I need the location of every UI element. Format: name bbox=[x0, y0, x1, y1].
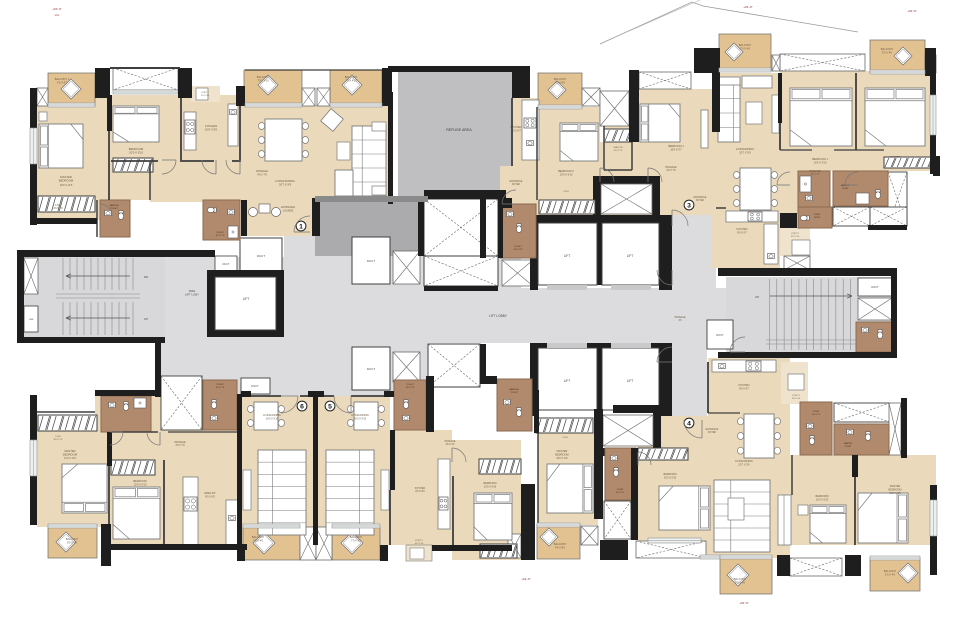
svg-text:7'0 X 4'10: 7'0 X 4'10 bbox=[257, 78, 269, 82]
svg-text:+91'-0": +91'-0" bbox=[52, 7, 61, 11]
svg-text:BEDROOM 2: BEDROOM 2 bbox=[558, 169, 574, 173]
svg-text:4'6 X 7'6: 4'6 X 7'6 bbox=[616, 492, 625, 494]
svg-text:TOILET: TOILET bbox=[406, 384, 414, 386]
svg-text:LIVING/DINING: LIVING/DINING bbox=[736, 147, 754, 151]
svg-text:20'7 X 9'9: 20'7 X 9'9 bbox=[279, 183, 292, 187]
svg-text:DUCT: DUCT bbox=[257, 254, 265, 258]
svg-text:BEDROOM: BEDROOM bbox=[889, 488, 902, 491]
svg-text:8'0 X 1'6: 8'0 X 1'6 bbox=[54, 439, 63, 441]
svg-text:MASTER: MASTER bbox=[509, 388, 519, 391]
svg-text:5: 5 bbox=[328, 403, 332, 410]
svg-text:LIFT LOBY: LIFT LOBY bbox=[185, 293, 199, 297]
svg-text:TOILET: TOILET bbox=[216, 384, 224, 386]
svg-text:4'6 X 3'0: 4'6 X 3'0 bbox=[792, 398, 801, 400]
svg-text:5'0 X 4'6: 5'0 X 4'6 bbox=[882, 50, 892, 54]
svg-text:4'6 X 7'6: 4'6 X 7'6 bbox=[514, 249, 523, 251]
svg-text:BALCONY: BALCONY bbox=[554, 542, 567, 546]
svg-text:ENTRANCE: ENTRANCE bbox=[510, 180, 523, 183]
svg-text:BEDROOM: BEDROOM bbox=[133, 479, 146, 483]
svg-text:BALCONY: BALCONY bbox=[345, 75, 358, 79]
svg-text:MASTER: MASTER bbox=[557, 449, 568, 453]
svg-text:UP: UP bbox=[144, 317, 148, 321]
svg-text:4'6 X 7'0: 4'6 X 7'0 bbox=[257, 173, 267, 176]
svg-text:UTILITY: UTILITY bbox=[415, 540, 424, 542]
svg-text:7'0 X 4'6: 7'0 X 4'6 bbox=[351, 538, 361, 542]
svg-text:10'0 X 11'5: 10'0 X 11'5 bbox=[60, 183, 73, 187]
svg-text:ENTRANCE: ENTRANCE bbox=[694, 196, 707, 199]
svg-text:BALCONY: BALCONY bbox=[257, 75, 270, 79]
svg-text:4'6 X 7'6: 4'6 X 7'6 bbox=[406, 387, 415, 389]
svg-text:10'0 X 9'10: 10'0 X 9'10 bbox=[664, 476, 677, 479]
svg-text:+91'-0": +91'-0" bbox=[907, 9, 916, 13]
svg-text:10'0 X 9'10: 10'0 X 9'10 bbox=[560, 172, 573, 176]
svg-text:BEDROOM: BEDROOM bbox=[555, 452, 568, 456]
svg-text:C.B.D: C.B.D bbox=[562, 437, 568, 439]
svg-text:DUCT: DUCT bbox=[871, 285, 879, 289]
svg-text:BALCONY: BALCONY bbox=[252, 535, 265, 539]
svg-text:4'6 X 7'0: 4'6 X 7'0 bbox=[811, 174, 821, 176]
svg-text:10'0 X 11'5: 10'0 X 11'5 bbox=[64, 457, 76, 460]
svg-text:TOILET: TOILET bbox=[216, 232, 224, 234]
svg-text:DUCT: DUCT bbox=[367, 259, 375, 263]
svg-text:TOILET: TOILET bbox=[813, 411, 821, 413]
svg-text:BEDROOM 1: BEDROOM 1 bbox=[668, 144, 684, 148]
svg-text:FOYER: FOYER bbox=[708, 432, 716, 434]
svg-text:16'0 X 9'10: 16'0 X 9'10 bbox=[266, 417, 279, 420]
svg-text:LVL: LVL bbox=[55, 13, 60, 17]
svg-text:DUCT: DUCT bbox=[251, 384, 259, 388]
svg-text:DUCT: DUCT bbox=[223, 263, 230, 266]
svg-text:TOILET: TOILET bbox=[617, 489, 625, 491]
svg-text:20'7 X 9'9: 20'7 X 9'9 bbox=[739, 463, 751, 466]
svg-text:1: 1 bbox=[299, 223, 303, 230]
svg-text:10'0 X 9'10: 10'0 X 9'10 bbox=[129, 151, 143, 155]
svg-text:WALK IN: WALK IN bbox=[614, 146, 623, 149]
svg-text:LIFT: LIFT bbox=[564, 379, 571, 383]
svg-text:UTILITY: UTILITY bbox=[791, 233, 800, 235]
svg-text:4'6 X 8'7: 4'6 X 8'7 bbox=[57, 80, 67, 84]
svg-text:LOUNGE: LOUNGE bbox=[283, 209, 294, 212]
svg-text:+91'-0": +91'-0" bbox=[743, 5, 752, 9]
svg-text:4'6 X 3'0: 4'6 X 3'0 bbox=[415, 543, 424, 545]
svg-text:LMR: LMR bbox=[29, 319, 34, 321]
svg-text:16'0 X 9'10: 16'0 X 9'10 bbox=[354, 417, 367, 420]
svg-text:5'0 X 4'6: 5'0 X 4'6 bbox=[885, 572, 895, 576]
svg-text:LIFT: LIFT bbox=[564, 254, 571, 258]
svg-text:10'0 X 9'10: 10'0 X 9'10 bbox=[484, 485, 497, 488]
svg-text:10'0 X 11'5: 10'0 X 11'5 bbox=[556, 458, 568, 460]
svg-text:4'6 X 7'6: 4'6 X 7'6 bbox=[812, 414, 821, 416]
svg-text:BALCONY: BALCONY bbox=[66, 537, 79, 541]
svg-text:7'0 X 4'6: 7'0 X 4'6 bbox=[740, 46, 750, 50]
svg-text:4'6 X 7'0: 4'6 X 7'0 bbox=[175, 444, 185, 447]
svg-text:DUCT: DUCT bbox=[367, 367, 375, 371]
svg-text:4'6X7'6: 4'6X7'6 bbox=[814, 217, 821, 219]
svg-text:8'0 X 8'0: 8'0 X 8'0 bbox=[415, 490, 425, 493]
svg-text:BEDROOM 1: BEDROOM 1 bbox=[812, 157, 828, 161]
svg-text:ENTRANCE: ENTRANCE bbox=[706, 428, 719, 431]
svg-text:TOILET: TOILET bbox=[814, 214, 822, 216]
svg-text:BALCONY: BALCONY bbox=[734, 577, 747, 581]
svg-text:DUCT: DUCT bbox=[716, 333, 724, 337]
svg-text:+91'-0": +91'-0" bbox=[521, 577, 530, 581]
svg-text:LIFT LOBBY: LIFT LOBBY bbox=[489, 314, 508, 318]
svg-text:10'0 X 8'0: 10'0 X 8'0 bbox=[205, 128, 218, 132]
svg-text:BEDROOM: BEDROOM bbox=[59, 179, 74, 183]
svg-text:UTILITY: UTILITY bbox=[792, 395, 801, 397]
svg-text:UTILITY: UTILITY bbox=[201, 92, 209, 94]
svg-text:4'6 X 7'6: 4'6 X 7'6 bbox=[216, 387, 225, 389]
svg-text:C.B.D: C.B.D bbox=[563, 191, 569, 193]
svg-text:BALCONY 1: BALCONY 1 bbox=[55, 77, 70, 81]
svg-text:LIFT: LIFT bbox=[243, 297, 250, 301]
svg-text:BALCONY: BALCONY bbox=[881, 47, 894, 51]
svg-text:DN: DN bbox=[144, 275, 148, 279]
svg-text:BALCONY: BALCONY bbox=[884, 569, 897, 573]
svg-text:10'0 X 11'5: 10'0 X 11'5 bbox=[889, 493, 901, 495]
svg-text:8'0 X 8'0: 8'0 X 8'0 bbox=[205, 495, 215, 498]
svg-text:4'6 X 3'0: 4'6 X 3'0 bbox=[791, 236, 800, 238]
svg-text:8'0 X 9'7: 8'0 X 9'7 bbox=[737, 231, 747, 234]
svg-text:7'0 X 4'6: 7'0 X 4'6 bbox=[253, 538, 263, 542]
svg-text:TOILET: TOILET bbox=[110, 208, 118, 210]
svg-text:MASTER: MASTER bbox=[64, 449, 75, 453]
svg-text:8'0 X 9'7: 8'0 X 9'7 bbox=[739, 387, 749, 390]
svg-text:MASTER: MASTER bbox=[109, 204, 119, 207]
svg-text:10'0 X 9'10: 10'0 X 9'10 bbox=[816, 498, 829, 501]
svg-text:LIFT: LIFT bbox=[627, 254, 634, 258]
svg-text:TOILET: TOILET bbox=[514, 246, 522, 248]
svg-text:4'6 X 8'0: 4'6 X 8'0 bbox=[555, 545, 565, 549]
svg-text:10'0 X 9'10: 10'0 X 9'10 bbox=[814, 160, 827, 164]
svg-text:TOILET: TOILET bbox=[510, 392, 518, 394]
svg-text:PASSAGE: PASSAGE bbox=[445, 440, 456, 443]
svg-text:TOILET: TOILET bbox=[845, 446, 853, 448]
svg-text:PASSAGE: PASSAGE bbox=[810, 170, 821, 173]
svg-text:BALCONY: BALCONY bbox=[554, 77, 567, 81]
svg-text:BALCONY: BALCONY bbox=[739, 43, 752, 47]
svg-text:4: 4 bbox=[687, 420, 691, 427]
svg-text:4'6 X 3'0: 4'6 X 3'0 bbox=[446, 444, 456, 446]
svg-text:4'6 X 3'0: 4'6 X 3'0 bbox=[201, 95, 210, 97]
svg-text:FOYER: FOYER bbox=[512, 184, 520, 186]
svg-text:8'0 X 4'6: 8'0 X 4'6 bbox=[67, 540, 77, 544]
svg-text:C.B.D: C.B.D bbox=[55, 436, 61, 438]
svg-text:+91'-0": +91'-0" bbox=[739, 601, 748, 605]
svg-text:10'0 X 9'10: 10'0 X 9'10 bbox=[134, 482, 147, 486]
svg-text:BALCONY: BALCONY bbox=[350, 535, 363, 539]
svg-text:LIFT: LIFT bbox=[627, 379, 634, 383]
svg-text:20'7 X 9'9: 20'7 X 9'9 bbox=[739, 150, 751, 154]
svg-text:PASSAGE: PASSAGE bbox=[675, 316, 686, 319]
svg-text:4'6 X 7'6: 4'6 X 7'6 bbox=[614, 150, 623, 152]
svg-text:6: 6 bbox=[300, 403, 304, 410]
svg-text:TOILET: TOILET bbox=[842, 188, 850, 190]
svg-text:10'0 X 9'7: 10'0 X 9'7 bbox=[670, 147, 682, 151]
svg-text:4'6 X 7'0: 4'6 X 7'0 bbox=[216, 235, 225, 237]
svg-text:UP: UP bbox=[755, 295, 759, 299]
svg-text:4'6 X 8'0: 4'6 X 8'0 bbox=[555, 80, 565, 84]
svg-text:MASTER: MASTER bbox=[844, 442, 853, 445]
svg-text:FOYER: FOYER bbox=[696, 200, 704, 202]
svg-text:4'6 X 1'6: 4'6 X 1'6 bbox=[53, 207, 63, 210]
svg-text:4'6 X 7'6: 4'6 X 7'6 bbox=[666, 169, 676, 172]
svg-text:REFUGE AREA: REFUGE AREA bbox=[446, 128, 472, 132]
svg-text:7'0 X 4'6: 7'0 X 4'6 bbox=[735, 580, 745, 584]
svg-text:BEDROOM: BEDROOM bbox=[63, 453, 78, 457]
svg-text:7'0 X 4'10: 7'0 X 4'10 bbox=[345, 78, 357, 82]
svg-text:3: 3 bbox=[687, 202, 691, 209]
